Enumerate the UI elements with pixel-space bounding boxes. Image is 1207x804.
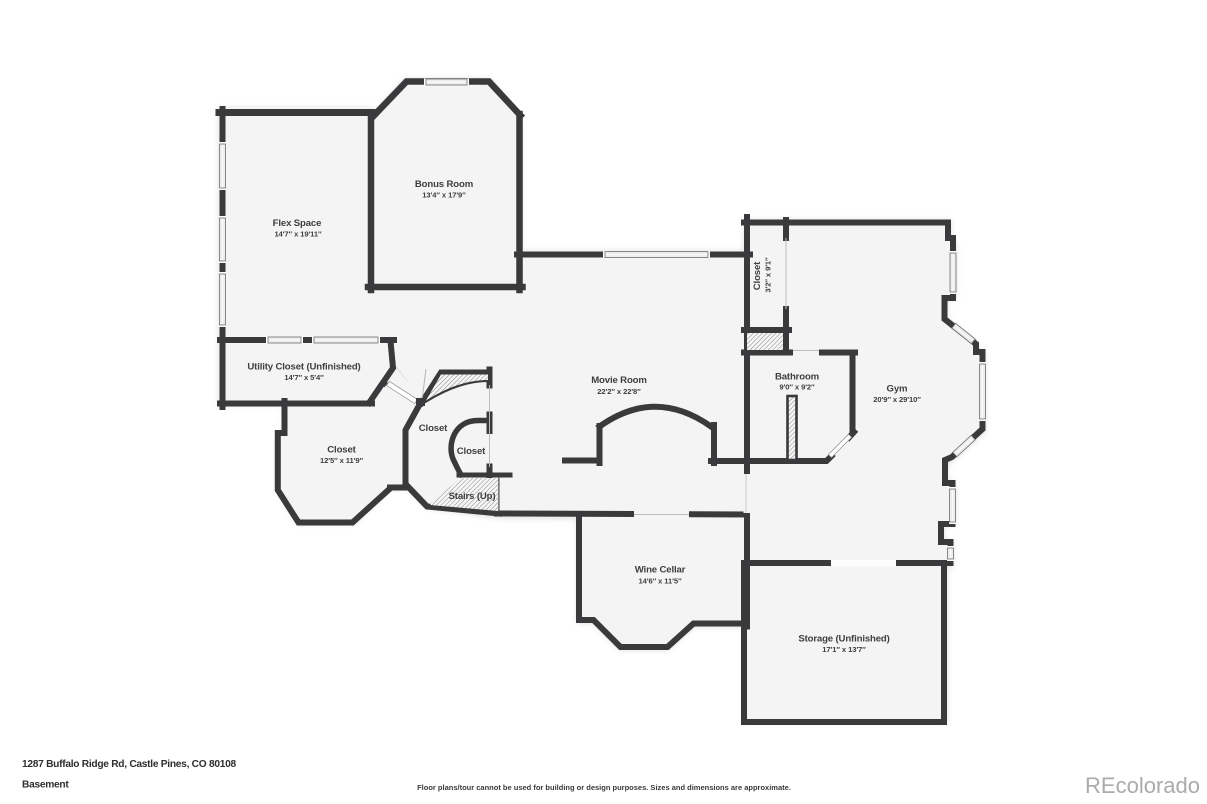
svg-text:12′5″ x 11′9″: 12′5″ x 11′9″	[320, 456, 363, 465]
svg-text:Closet: Closet	[752, 261, 763, 290]
svg-text:14′7″ x 19′11″: 14′7″ x 19′11″	[274, 230, 322, 239]
svg-text:14′7″ x 5′4″: 14′7″ x 5′4″	[284, 373, 324, 382]
svg-text:22′2″ x 22′8″: 22′2″ x 22′8″	[597, 387, 641, 396]
svg-text:Flex Space: Flex Space	[273, 218, 322, 229]
svg-text:13′4″ x 17′9″: 13′4″ x 17′9″	[422, 191, 466, 200]
svg-text:Storage (Unfinished): Storage (Unfinished)	[798, 634, 889, 645]
svg-text:Floor plans/tour cannot be use: Floor plans/tour cannot be used for buil…	[417, 783, 791, 792]
svg-text:Closet: Closet	[327, 445, 356, 456]
svg-text:Bathroom: Bathroom	[775, 372, 819, 383]
svg-text:3′2″ x 9′1″: 3′2″ x 9′1″	[764, 257, 773, 293]
svg-text:Bonus Room: Bonus Room	[415, 179, 473, 190]
svg-text:17′1″ x 13′7″: 17′1″ x 13′7″	[822, 645, 866, 654]
svg-text:20′9″ x 29′10″: 20′9″ x 29′10″	[873, 395, 921, 404]
svg-text:Stairs (Up): Stairs (Up)	[449, 491, 496, 502]
svg-text:14′6″ x 11′5″: 14′6″ x 11′5″	[639, 577, 682, 586]
svg-text:Basement: Basement	[22, 780, 69, 791]
svg-text:1287 Buffalo Ridge Rd, Castle: 1287 Buffalo Ridge Rd, Castle Pines, CO …	[22, 759, 236, 770]
svg-text:Gym: Gym	[887, 384, 908, 395]
svg-text:Wine Cellar: Wine Cellar	[635, 565, 686, 576]
svg-text:Closet: Closet	[419, 423, 448, 434]
svg-text:9′0″ x 9′2″: 9′0″ x 9′2″	[779, 383, 815, 392]
svg-text:REcolorado: REcolorado	[1085, 773, 1200, 798]
svg-text:Movie Room: Movie Room	[591, 375, 647, 386]
svg-text:Closet: Closet	[457, 446, 486, 457]
svg-text:Utility Closet (Unfinished): Utility Closet (Unfinished)	[247, 362, 360, 373]
